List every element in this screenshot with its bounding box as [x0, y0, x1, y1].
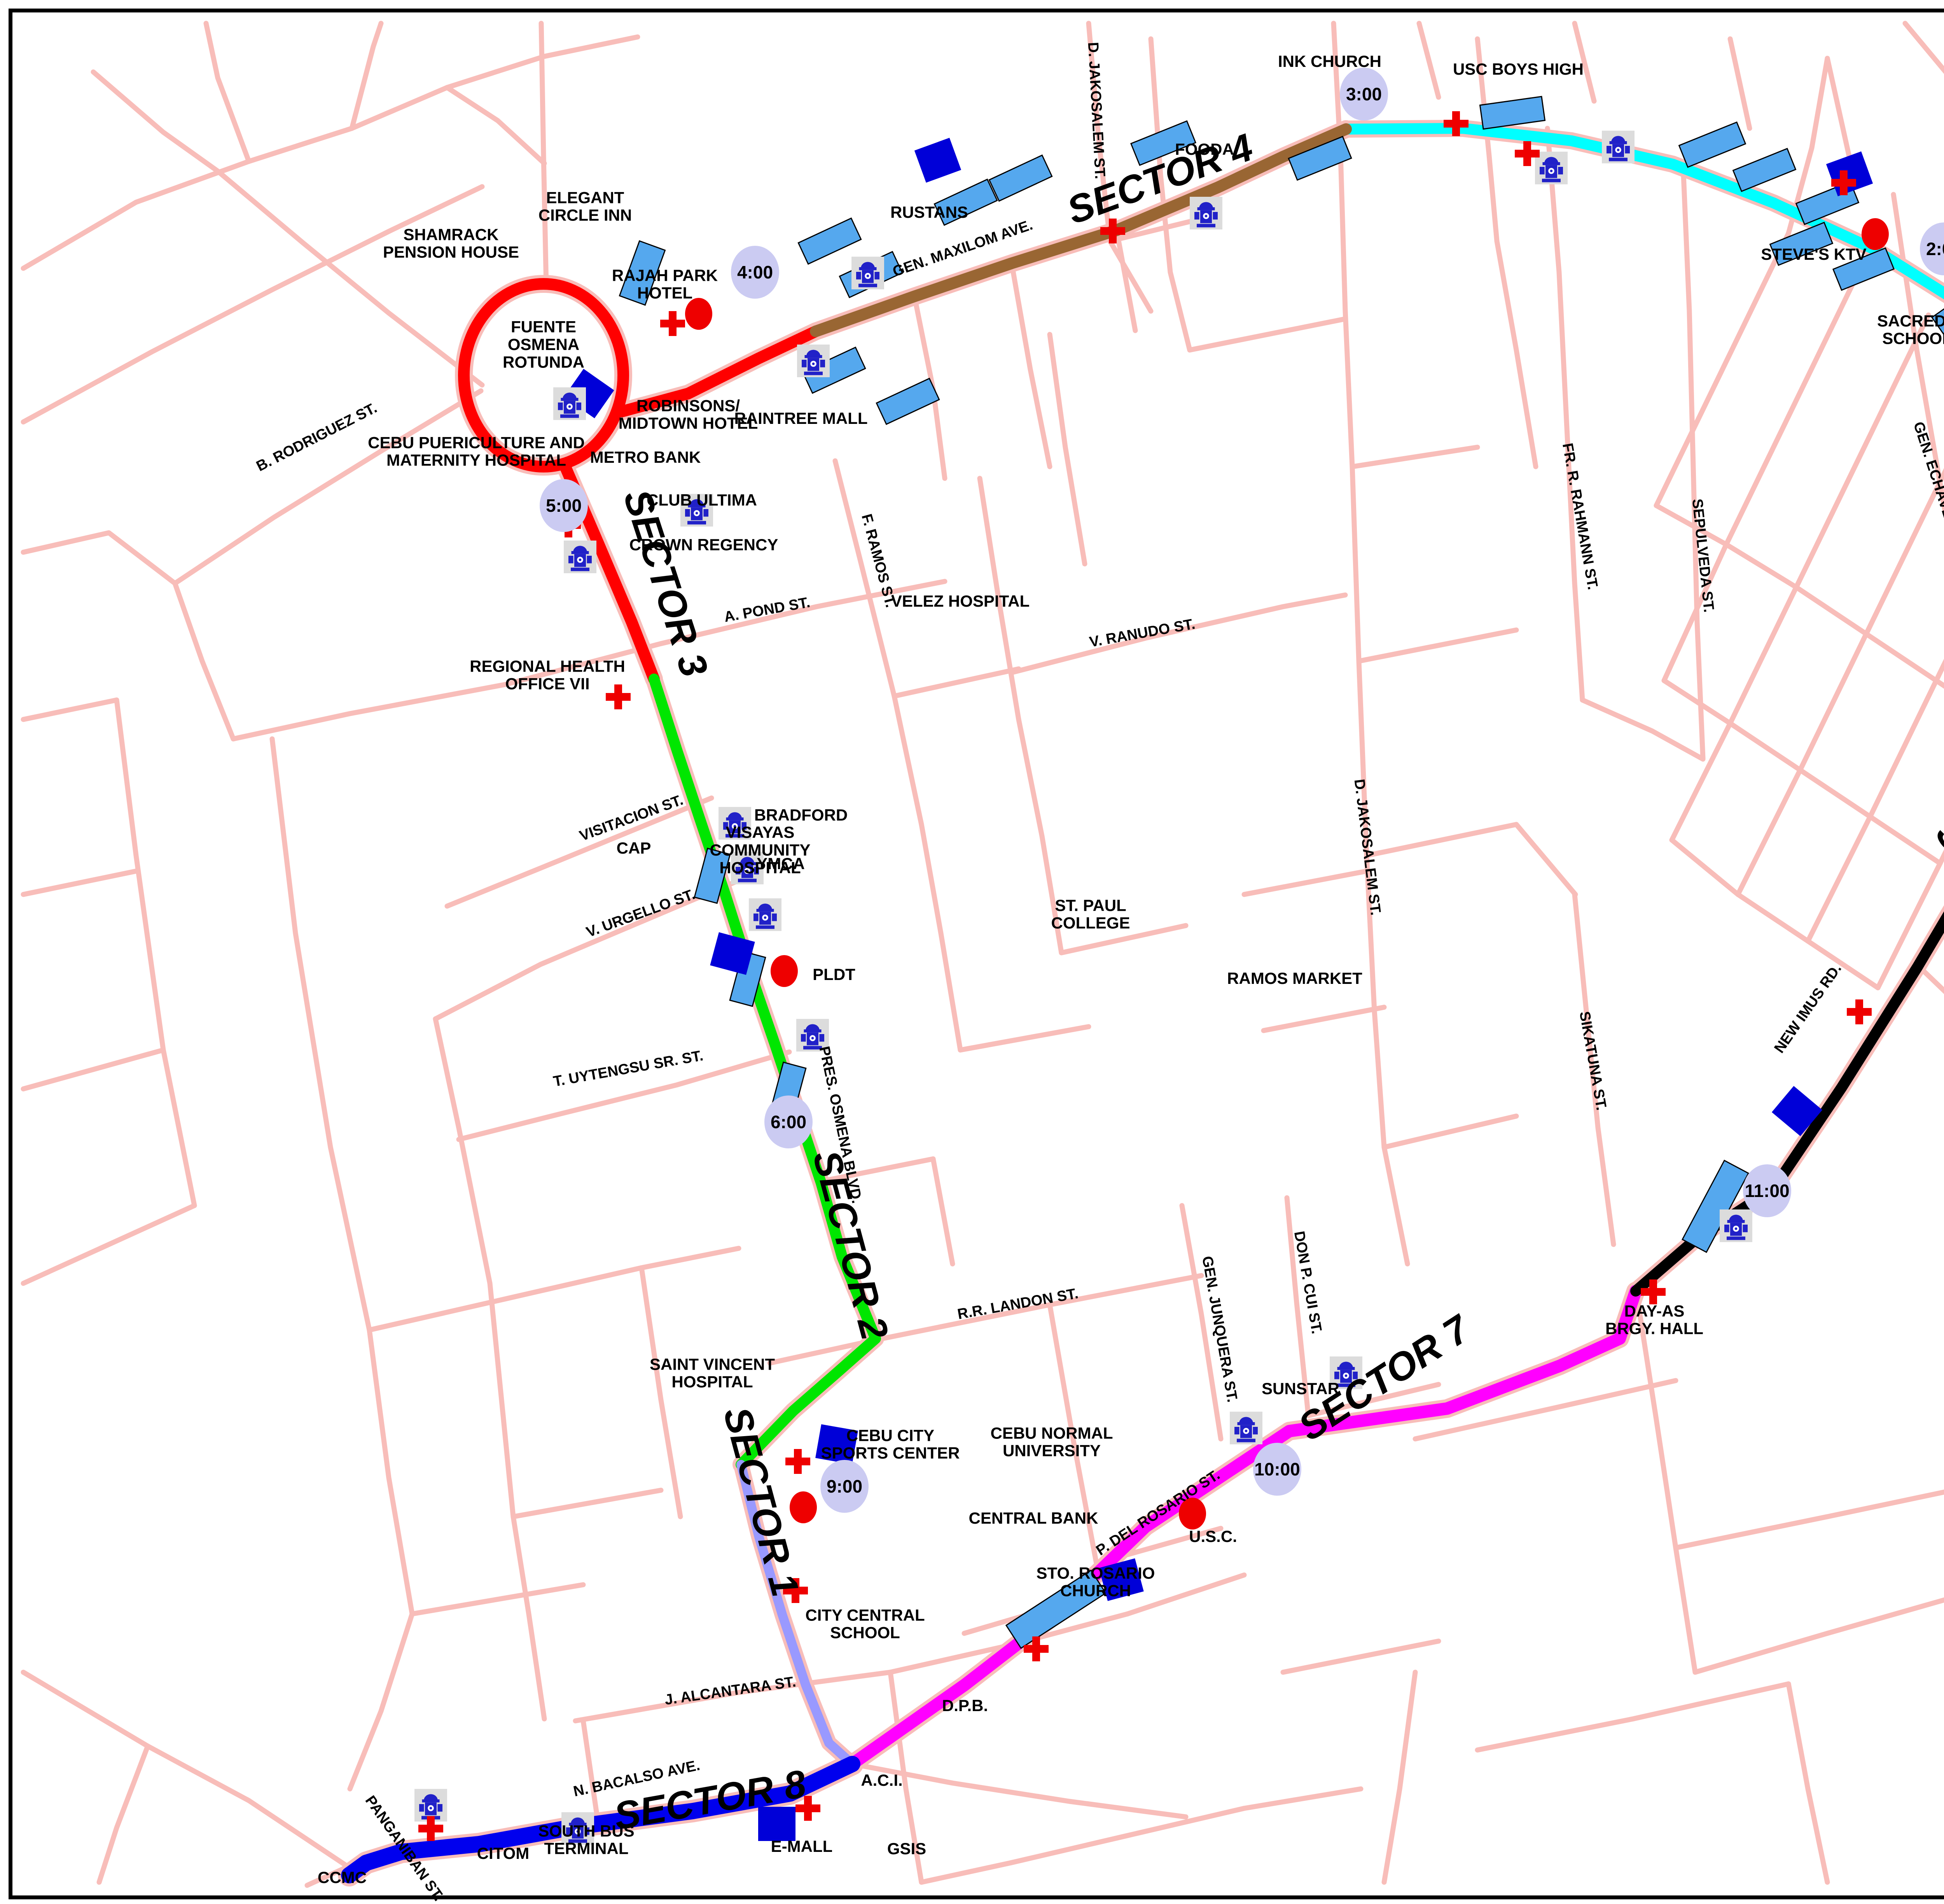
- road: [1244, 1789, 1361, 1808]
- road: [23, 187, 482, 422]
- label-raintree: RAINTREE MALL: [734, 409, 868, 427]
- medical-station-icon: [785, 1449, 810, 1474]
- road: [1367, 824, 1516, 856]
- bleachers: [1679, 122, 1746, 167]
- judging-station-icon: [790, 1491, 817, 1523]
- label-usc: U.S.C.: [1189, 1527, 1237, 1545]
- label-saint-vincent: SAINT VINCENTHOSPITAL: [650, 1355, 775, 1391]
- road: [23, 1672, 148, 1746]
- road: [513, 1490, 661, 1517]
- road: [513, 1517, 544, 1719]
- street-rr-landon: R.R. LANDON ST.: [956, 1285, 1079, 1323]
- road: [350, 1614, 412, 1789]
- road: [835, 461, 921, 824]
- bleachers: [876, 378, 939, 424]
- road: [23, 1050, 163, 1089]
- road: [1917, 964, 1944, 1233]
- road: [1582, 700, 1703, 759]
- time-bubble-label: 11:00: [1745, 1181, 1789, 1201]
- medical-station-icon: [660, 311, 685, 336]
- street-sikatuna: SIKATUNA ST.: [1576, 1010, 1610, 1111]
- water-station-icon: [851, 257, 884, 289]
- label-e-mall: E-MALL: [771, 1837, 833, 1855]
- label-sacred-hearth: SACRED HEARTHSCHOOL (BOYS): [1877, 311, 1944, 347]
- road: [23, 533, 175, 583]
- road: [1695, 1594, 1944, 1672]
- road: [1477, 1684, 1788, 1750]
- medical-station-icon: [606, 684, 631, 709]
- street-d-jakosalem-north: D. JAKOSALEM ST.: [1085, 42, 1108, 179]
- road: [206, 23, 249, 161]
- label-gsis: GSIS: [887, 1839, 926, 1858]
- time-bubble-label: 10:00: [1254, 1459, 1300, 1479]
- judging-station-icon: [771, 955, 798, 987]
- road: [1334, 23, 1407, 1264]
- label-cap: CAP: [617, 839, 651, 857]
- road: [1012, 263, 1050, 467]
- label-day-as: DAY-ASBRGY. HALL: [1605, 1302, 1703, 1337]
- road: [1656, 233, 1788, 506]
- label-ccmc: CCMC: [318, 1868, 367, 1886]
- road: [352, 23, 381, 128]
- road: [1264, 1007, 1384, 1031]
- street-d-jakosalem-south: D. JAKOSALEM ST.: [1351, 778, 1384, 916]
- time-bubbles-layer: 2:003:004:005:006:009:0010:0011:0012:00: [540, 68, 1944, 1513]
- water-station-icon: [1720, 1209, 1752, 1242]
- road: [23, 871, 136, 894]
- label-st-paul: ST. PAULCOLLEGE: [1051, 896, 1130, 932]
- road: [148, 1746, 348, 1867]
- road: [1878, 455, 1944, 988]
- label-ink-church: INK CHURCH: [1278, 52, 1381, 70]
- street-j-alcantara: J. ALCANTARA ST.: [664, 1674, 797, 1708]
- sector-7-route: [852, 1291, 1636, 1764]
- road: [490, 1283, 513, 1517]
- road: [1419, 23, 1439, 97]
- time-bubble-label: 9:00: [827, 1476, 862, 1496]
- time-bubble-label: 4:00: [737, 262, 773, 282]
- road: [1547, 128, 1582, 700]
- label-cebu-normal: CEBU NORMALUNIVERSITY: [991, 1424, 1113, 1459]
- street-v-ranudo: V. RANUDO ST.: [1088, 616, 1196, 651]
- road: [541, 23, 546, 287]
- label-citom: CITOM: [477, 1844, 530, 1862]
- sector-6-label: SECTOR 6: [1927, 814, 1944, 998]
- street-fr-rahmann: FR. R. RAHMANN ST.: [1559, 442, 1601, 591]
- label-elegant-circle: ELEGANTCIRCLE INN: [538, 188, 632, 224]
- bleachers: [1480, 96, 1545, 129]
- time-bubble-label: 6:00: [771, 1112, 806, 1132]
- water-station-icon: [1230, 1412, 1262, 1444]
- road: [272, 739, 369, 1330]
- road: [1283, 1641, 1439, 1672]
- sector-7-roadbed: [852, 1291, 1636, 1764]
- command-post: [914, 138, 961, 183]
- street-visitacion: VISITACION ST.: [577, 792, 685, 844]
- road: [412, 1585, 583, 1614]
- label-bradford: BRADFORD: [754, 806, 848, 824]
- label-velez-hospital: VELEZ HOSPITAL: [891, 592, 1030, 610]
- road: [933, 1159, 953, 1264]
- street-v-urgello: V. URGELLO ST.: [584, 886, 697, 941]
- road: [583, 1721, 599, 1828]
- road: [1050, 334, 1085, 564]
- road: [1352, 447, 1477, 467]
- road: [23, 700, 117, 719]
- sector-2-label: SECTOR 2: [804, 1146, 897, 1344]
- road: [1516, 824, 1575, 894]
- road: [894, 669, 1019, 696]
- road: [1788, 1684, 1827, 1882]
- road: [435, 1019, 490, 1283]
- label-shamrack: SHAMRACKPENSION HOUSE: [383, 225, 519, 261]
- label-steves-ktv: STEVE'S KTV: [1761, 245, 1866, 263]
- road: [1011, 1808, 1244, 1863]
- road: [1730, 39, 1750, 128]
- medical-station-icon: [1847, 999, 1872, 1024]
- label-dpb: D.P.B.: [942, 1696, 988, 1715]
- road-network-layer: [23, 23, 1944, 1885]
- road: [1384, 1672, 1415, 1882]
- road: [117, 700, 194, 1206]
- label-ymca: YMCA: [757, 854, 805, 873]
- street-new-imus: NEW IMUS RD.: [1771, 961, 1844, 1056]
- water-station-icon: [797, 345, 830, 377]
- bleachers: [1733, 149, 1796, 191]
- road: [921, 1863, 1011, 1882]
- road: [1359, 630, 1516, 661]
- judging-station-icon: [685, 298, 712, 330]
- label-usc-boys-high: USC BOYS HIGH: [1453, 60, 1584, 78]
- water-station-icon: [553, 387, 586, 420]
- map-page: 2:003:004:005:006:009:0010:0011:0012:00 …: [0, 0, 1944, 1904]
- road: [921, 824, 960, 1050]
- road: [960, 1027, 1089, 1050]
- road: [175, 583, 233, 739]
- label-central-bank: CENTRAL BANK: [969, 1509, 1098, 1527]
- road: [770, 1276, 1201, 1363]
- road: [175, 391, 481, 583]
- road: [99, 1746, 148, 1882]
- road: [1637, 1295, 1695, 1672]
- label-pldt: PLDT: [813, 965, 855, 983]
- bleachers: [989, 155, 1052, 201]
- road: [1676, 1486, 1944, 1548]
- water-station-icon: [564, 541, 596, 573]
- road: [1827, 58, 1851, 163]
- water-station-icon: [749, 898, 781, 931]
- time-bubble-label: 3:00: [1346, 84, 1382, 104]
- road: [642, 1268, 680, 1517]
- road: [369, 1268, 642, 1330]
- water-station-icon: [1535, 152, 1568, 184]
- water-station-icon: [1190, 197, 1222, 229]
- time-bubble-label: 5:00: [546, 495, 582, 516]
- route-map-canvas: 2:003:004:005:006:009:0010:0011:0012:00 …: [0, 0, 1944, 1904]
- road: [447, 87, 544, 163]
- road: [447, 798, 712, 906]
- water-station-icon: [1602, 131, 1635, 163]
- label-puericulture: CEBU PUERICULTURE ANDMATERNITY HOSPITAL: [368, 433, 585, 469]
- label-aci: A.C.I.: [861, 1771, 902, 1789]
- road: [1684, 175, 1703, 758]
- road: [1384, 1116, 1516, 1147]
- label-city-central: CITY CENTRALSCHOOL: [805, 1606, 925, 1641]
- road: [1244, 871, 1367, 894]
- label-ramos-market: RAMOS MARKET: [1227, 969, 1362, 987]
- label-rustans: RUSTANS: [890, 203, 968, 221]
- road: [1190, 319, 1345, 350]
- time-bubble-label: 2:00: [1926, 239, 1944, 259]
- road: [642, 1248, 739, 1268]
- label-fuente-osmena: FUENTEOSMENAROTUNDA: [503, 318, 584, 371]
- road: [369, 1330, 412, 1614]
- stations-layer: [414, 111, 1944, 1845]
- road: [1738, 362, 1944, 894]
- road: [23, 1206, 194, 1283]
- road: [1497, 241, 1536, 467]
- label-metro-bank: METRO BANK: [590, 448, 701, 466]
